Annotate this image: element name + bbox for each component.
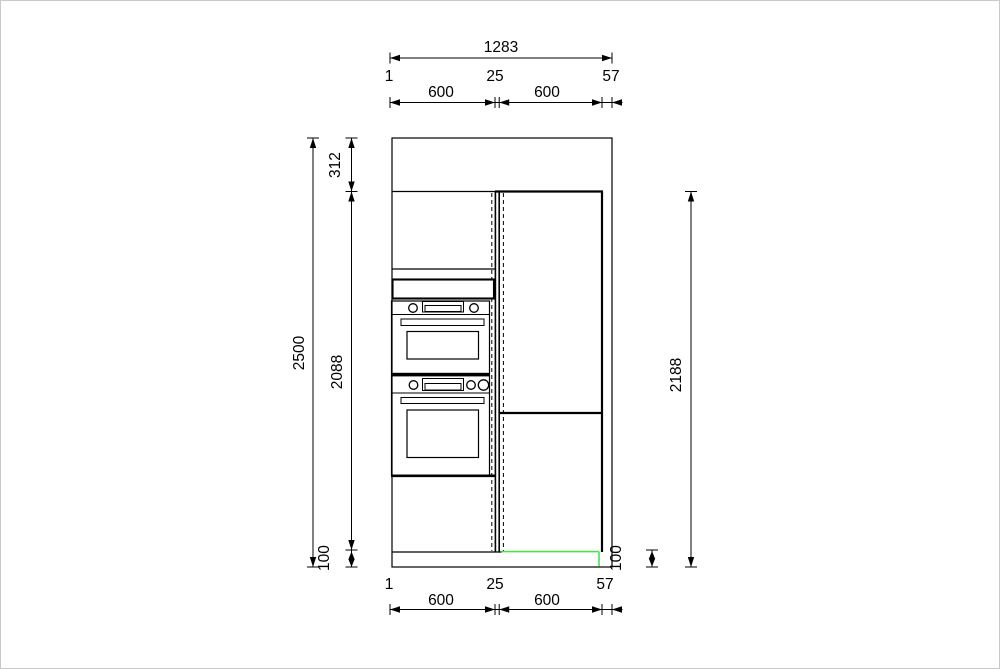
dim-arrow [348, 540, 354, 550]
main-oven-knob-left[interactable] [409, 381, 418, 390]
dim-arrow [592, 606, 602, 612]
main-oven-door-glass [407, 410, 479, 458]
dim-arrow [649, 559, 655, 567]
main-oven-knob-right[interactable] [478, 380, 488, 390]
compact-oven-knob-left[interactable] [409, 304, 418, 313]
right-cabinet-lower-door[interactable] [500, 415, 601, 551]
dim-label-gap-right-top: 57 [602, 68, 619, 85]
main-oven-display-window [425, 384, 461, 391]
dim-arrow [612, 99, 622, 105]
dim-arrow [485, 99, 495, 105]
elevation-drawing: 1283 1 25 57 600 600 1 25 57 600 600 250… [1, 1, 999, 668]
dim-label-gap-middle-top: 25 [486, 68, 503, 85]
compact-oven-door-glass [407, 332, 479, 360]
compact-oven[interactable] [392, 301, 490, 374]
compact-oven-display-window [425, 306, 461, 312]
dim-label-cabinet-right-bottom: 600 [534, 592, 560, 609]
dim-arrow [602, 55, 612, 61]
dim-arrow [499, 99, 509, 105]
dim-arrow [348, 182, 354, 192]
dim-label-gap-left-top: 1 [385, 68, 394, 85]
dim-arrow [649, 551, 655, 559]
drawing-canvas: 1283 1 25 57 600 600 1 25 57 600 600 250… [0, 0, 1000, 669]
dim-label-cabinet-left-top: 600 [428, 84, 454, 101]
dim-label-plinth-left: 100 [316, 545, 333, 571]
dim-arrow [592, 99, 602, 105]
dim-label-total-height: 2500 [291, 335, 308, 370]
dim-label-gap-middle-bottom: 25 [486, 576, 503, 593]
main-oven-handle[interactable] [401, 398, 484, 404]
right-cabinet-upper-door[interactable] [500, 193, 601, 412]
left-cabinet-bottom-front[interactable] [393, 477, 494, 551]
dim-arrow [348, 192, 354, 202]
dim-arrow [348, 559, 354, 567]
dim-arrow [485, 606, 495, 612]
dim-arrow [688, 192, 694, 202]
dim-label-total-width: 1283 [484, 39, 518, 56]
dim-arrow [390, 55, 400, 61]
dim-label-unit-height: 2188 [668, 358, 685, 392]
dim-arrow [688, 557, 694, 567]
compact-oven-handle[interactable] [401, 319, 484, 326]
dim-label-plinth-right: 100 [608, 545, 625, 571]
left-cabinet-top-door[interactable] [393, 193, 494, 269]
dim-label-cabinet-left-bottom: 600 [428, 592, 454, 609]
dim-arrow [390, 99, 400, 105]
dim-label-cabinet-right-top: 600 [534, 84, 560, 101]
dim-label-ceiling-gap: 312 [327, 152, 344, 178]
dim-arrow [348, 138, 354, 148]
dim-arrow [499, 606, 509, 612]
main-oven[interactable] [392, 376, 490, 476]
dim-label-gap-left-bottom: 1 [385, 576, 394, 593]
dim-arrow [390, 606, 400, 612]
vent-panel[interactable] [393, 280, 495, 299]
dim-label-cabinet-height: 2088 [329, 355, 346, 389]
compact-oven-knob-right[interactable] [470, 304, 479, 313]
main-oven-display [423, 379, 464, 391]
dim-arrow [310, 138, 316, 148]
dim-label-gap-right-bottom: 57 [596, 576, 613, 593]
dim-arrow [612, 606, 622, 612]
dim-arrow [348, 552, 354, 560]
main-oven-knob-middle[interactable] [467, 381, 476, 390]
compact-oven-display [423, 302, 464, 313]
